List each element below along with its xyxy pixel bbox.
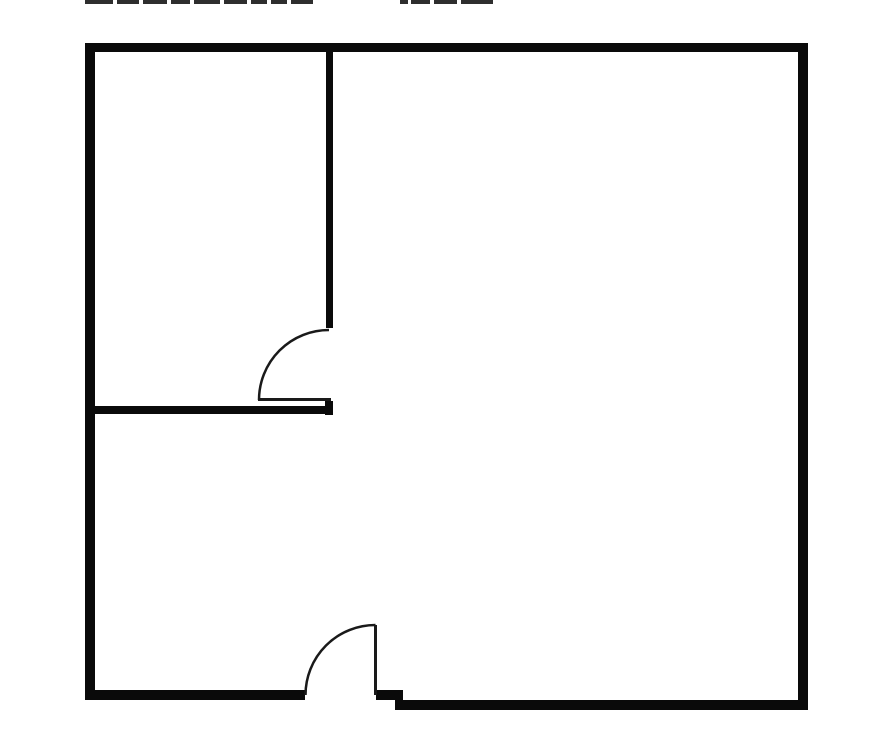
cropped-text-artifact	[85, 0, 113, 4]
cropped-text-artifact	[117, 0, 139, 4]
cropped-text-artifact	[461, 0, 493, 4]
cropped-text-artifact	[411, 0, 430, 4]
cropped-text-artifact	[434, 0, 457, 4]
walls-group	[85, 43, 808, 710]
cropped-text-artifact	[271, 0, 287, 4]
cropped-text-artifact	[224, 0, 247, 4]
interior-door-swing-arc	[259, 330, 329, 400]
interior-wall-horizontal	[95, 406, 333, 414]
interior-door-leaf	[258, 398, 331, 401]
entry-door-leaf	[374, 625, 377, 695]
floor-plan-svg	[0, 0, 895, 753]
outer-wall-left	[85, 43, 95, 700]
cropped-text-artifact	[251, 0, 267, 4]
interior-wall-vertical	[326, 52, 333, 328]
outer-wall-bottom-right	[395, 700, 808, 710]
top-edge-artifact-group	[85, 0, 493, 4]
doors-group	[258, 330, 377, 695]
outer-wall-bottom-left	[85, 690, 305, 700]
cropped-text-artifact	[194, 0, 220, 4]
entry-door-swing-arc	[306, 625, 376, 695]
cropped-text-artifact	[171, 0, 190, 4]
outer-wall-right	[798, 43, 808, 710]
outer-wall-top	[85, 43, 808, 52]
floor-plan-screenshot	[0, 0, 895, 753]
cropped-text-artifact	[291, 0, 313, 4]
interior-wall-door-jamb	[325, 401, 333, 415]
cropped-text-artifact	[143, 0, 167, 4]
cropped-text-artifact	[400, 0, 408, 4]
outer-wall-bottom-mid	[376, 690, 403, 700]
